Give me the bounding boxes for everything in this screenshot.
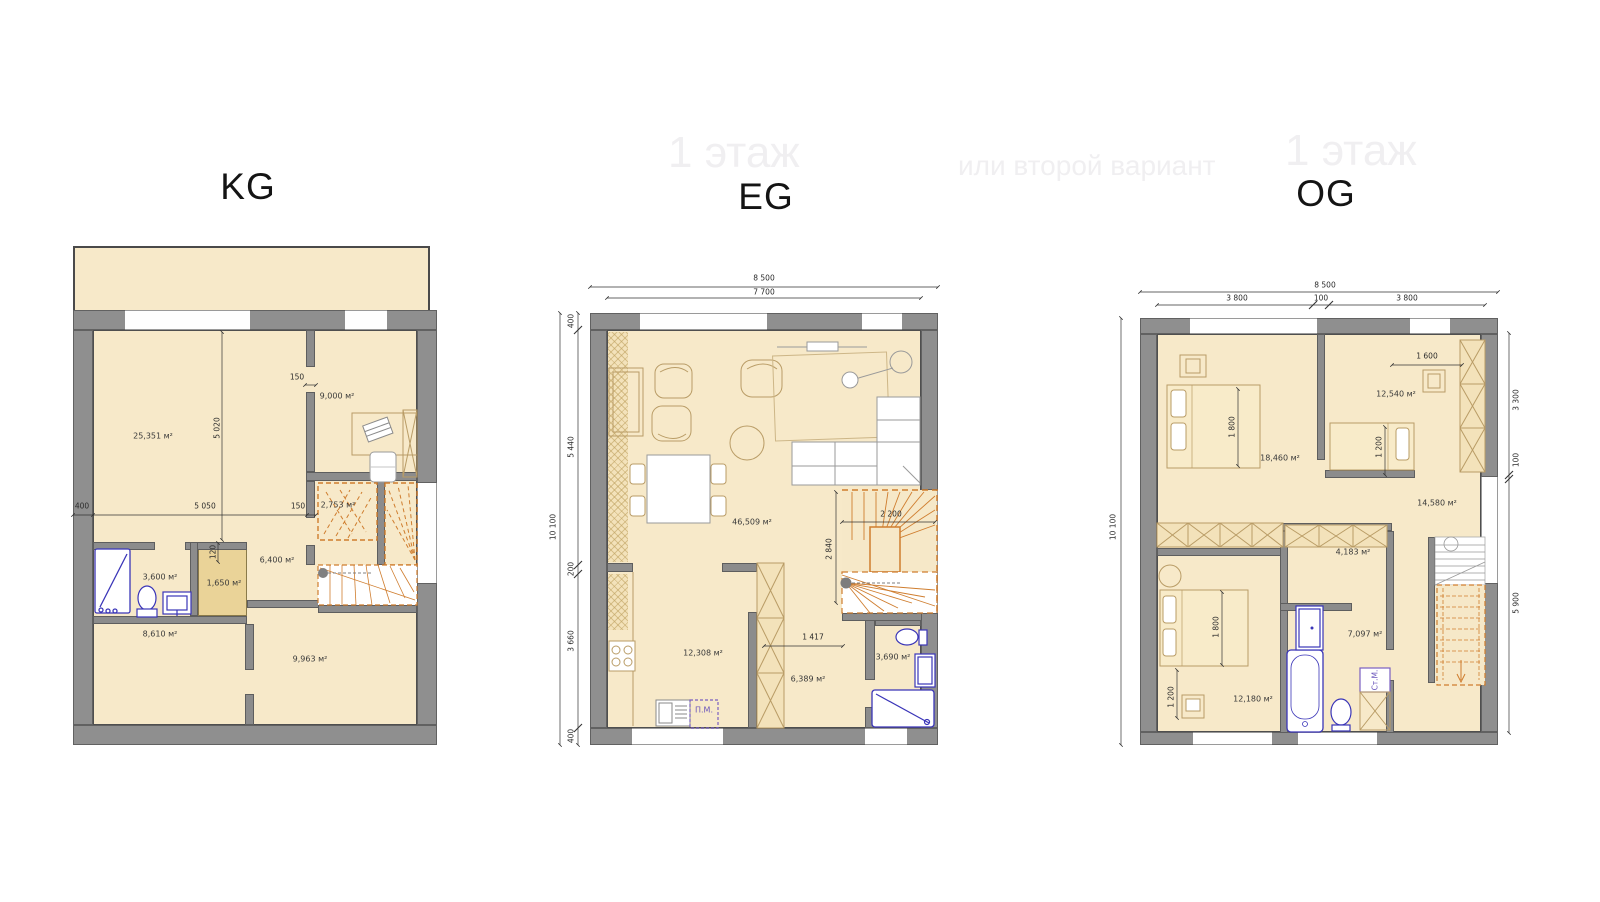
- kg-floor: [93, 330, 417, 725]
- og-dim-100a: 100: [1314, 294, 1328, 303]
- eg-dim-2200: 2 200: [880, 510, 901, 519]
- og-partition: [1325, 470, 1415, 478]
- kg-wall-bottom: [73, 725, 437, 745]
- og-room-label-bath: 7,097 м²: [1348, 630, 1383, 639]
- kg-room-label-main: 25,351 м²: [133, 432, 173, 441]
- kg-dim-5020: 5 020: [213, 417, 222, 438]
- kg-room-label-room-bl: 8,610 м²: [143, 630, 178, 639]
- kg-room-label-room-br: 9,963 м²: [293, 655, 328, 664]
- kg-dim-150b: 150: [291, 502, 305, 511]
- kg-room-label-bath: 3,600 м²: [143, 573, 178, 582]
- plan-title-eg: EG: [738, 176, 793, 218]
- eg-room-label-hall: 6,389 м²: [791, 675, 826, 684]
- floorplan-sheet: 1 этаж или второй вариант 1 этаж KG EG O…: [0, 0, 1600, 902]
- plan-title-og: OG: [1296, 173, 1356, 215]
- og-dim-1200b: 1 200: [1167, 686, 1176, 707]
- eg-partition: [842, 613, 922, 621]
- kg-wall-right: [417, 330, 437, 483]
- og-dim-8500: 8 500: [1314, 281, 1335, 290]
- kg-partition: [190, 542, 198, 616]
- kg-partition: [306, 481, 315, 518]
- og-partition: [1282, 523, 1392, 531]
- kg-dim-150a: 150: [290, 373, 304, 382]
- kg-dim-400: 400: [75, 502, 89, 511]
- eg-wall-left: [590, 330, 607, 728]
- eg-partition: [865, 707, 875, 728]
- og-partition: [1280, 531, 1288, 733]
- og-partition: [1280, 603, 1352, 611]
- og-dim-3800a: 3 800: [1226, 294, 1247, 303]
- kg-partition: [93, 616, 247, 624]
- eg-dim-400b: 400: [567, 729, 576, 743]
- kg-dim-120: 120: [209, 545, 218, 559]
- eg-dim-1417: 1 417: [802, 633, 823, 642]
- og-window: [1190, 318, 1317, 334]
- eg-partition: [607, 563, 633, 572]
- og-dim-10100: 10 100: [1109, 514, 1118, 540]
- eg-dim-2840: 2 840: [825, 538, 834, 559]
- eg-dim-7700: 7 700: [753, 288, 774, 297]
- og-room-label-bed2: 12,540 м²: [1376, 390, 1416, 399]
- eg-room-label-bath: 3,690 м²: [876, 653, 911, 662]
- kg-partition: [245, 624, 254, 670]
- og-room-label-bed3: 12,180 м²: [1233, 695, 1273, 704]
- eg-dishwasher-label: П.М.: [695, 706, 713, 715]
- kg-partition: [306, 330, 315, 367]
- og-window: [1410, 318, 1450, 334]
- kg-partition: [318, 605, 417, 613]
- og-window: [1481, 477, 1498, 583]
- kg-partition: [93, 542, 155, 550]
- og-window: [1193, 732, 1272, 745]
- eg-dim-200: 200: [567, 562, 576, 576]
- kg-room-label-stair: 2,753 м²: [321, 501, 356, 510]
- og-dim-5900: 5 900: [1512, 592, 1521, 613]
- kg-partition: [306, 472, 417, 481]
- watermark-right-large: 1 этаж: [1285, 126, 1417, 176]
- kg-room-label-office: 9,000 м²: [320, 392, 355, 401]
- eg-wall-right: [921, 613, 938, 728]
- og-washer-label: Ст.М.: [1371, 670, 1380, 691]
- og-dim-1600: 1 600: [1416, 352, 1437, 361]
- kg-window: [417, 483, 437, 583]
- eg-wall-right: [921, 330, 938, 490]
- kg-room-label-hall: 6,400 м²: [260, 556, 295, 565]
- og-dim-1800b: 1 800: [1212, 616, 1221, 637]
- og-wall-right: [1481, 583, 1498, 732]
- og-dim-100b: 100: [1512, 453, 1521, 467]
- watermark-left: 1 этаж: [668, 128, 800, 178]
- og-window: [1298, 732, 1377, 745]
- eg-room-label-living: 46,509 м²: [732, 518, 772, 527]
- eg-dim-3660: 3 660: [567, 630, 576, 651]
- og-stair-wall: [1428, 537, 1435, 683]
- og-wall-left: [1140, 334, 1157, 732]
- eg-room-label-kitchen: 12,308 м²: [683, 649, 723, 658]
- kg-partition: [245, 694, 254, 725]
- kg-window: [125, 310, 250, 330]
- kg-wall-left: [73, 330, 93, 725]
- watermark-right-small: или второй вариант: [958, 150, 1216, 182]
- eg-dim-400a: 400: [567, 314, 576, 328]
- og-room-label-bed1: 18,460 м²: [1260, 454, 1300, 463]
- eg-window: [921, 490, 938, 613]
- eg-partition: [722, 563, 757, 572]
- kg-partition: [306, 392, 315, 472]
- eg-wardrobe-strip: [608, 574, 628, 630]
- eg-dim-10100: 10 100: [549, 514, 558, 540]
- og-partition: [1386, 531, 1394, 650]
- eg-partition: [865, 618, 875, 680]
- og-dim-3300: 3 300: [1512, 389, 1521, 410]
- plan-title-kg: KG: [220, 166, 275, 208]
- kg-partition: [377, 481, 385, 565]
- og-dim-1800a: 1 800: [1228, 416, 1237, 437]
- og-dim-1200a: 1 200: [1375, 436, 1384, 457]
- eg-window: [862, 313, 902, 330]
- eg-partition: [748, 612, 757, 728]
- eg-dim-5440: 5 440: [567, 436, 576, 457]
- og-room-label-closet: 4,183 м²: [1336, 548, 1371, 557]
- kg-partition: [247, 600, 323, 608]
- eg-window: [865, 728, 907, 745]
- eg-wardrobe-strip: [608, 332, 628, 562]
- og-room-label-hall: 14,580 м²: [1417, 499, 1457, 508]
- og-dim-3800b: 3 800: [1396, 294, 1417, 303]
- kg-room-label-storage: 1,650 м²: [207, 579, 242, 588]
- kg-dim-5050: 5 050: [194, 502, 215, 511]
- og-partition: [1386, 680, 1394, 733]
- og-partition: [1157, 548, 1283, 556]
- og-partition: [1317, 334, 1325, 460]
- og-wall-right: [1481, 334, 1498, 477]
- eg-window: [632, 728, 723, 745]
- eg-window: [640, 313, 767, 330]
- kg-lightwell: [73, 246, 430, 312]
- kg-partition: [306, 545, 315, 565]
- kg-window: [345, 310, 387, 330]
- eg-dim-8500: 8 500: [753, 274, 774, 283]
- kg-wall-right: [417, 583, 437, 725]
